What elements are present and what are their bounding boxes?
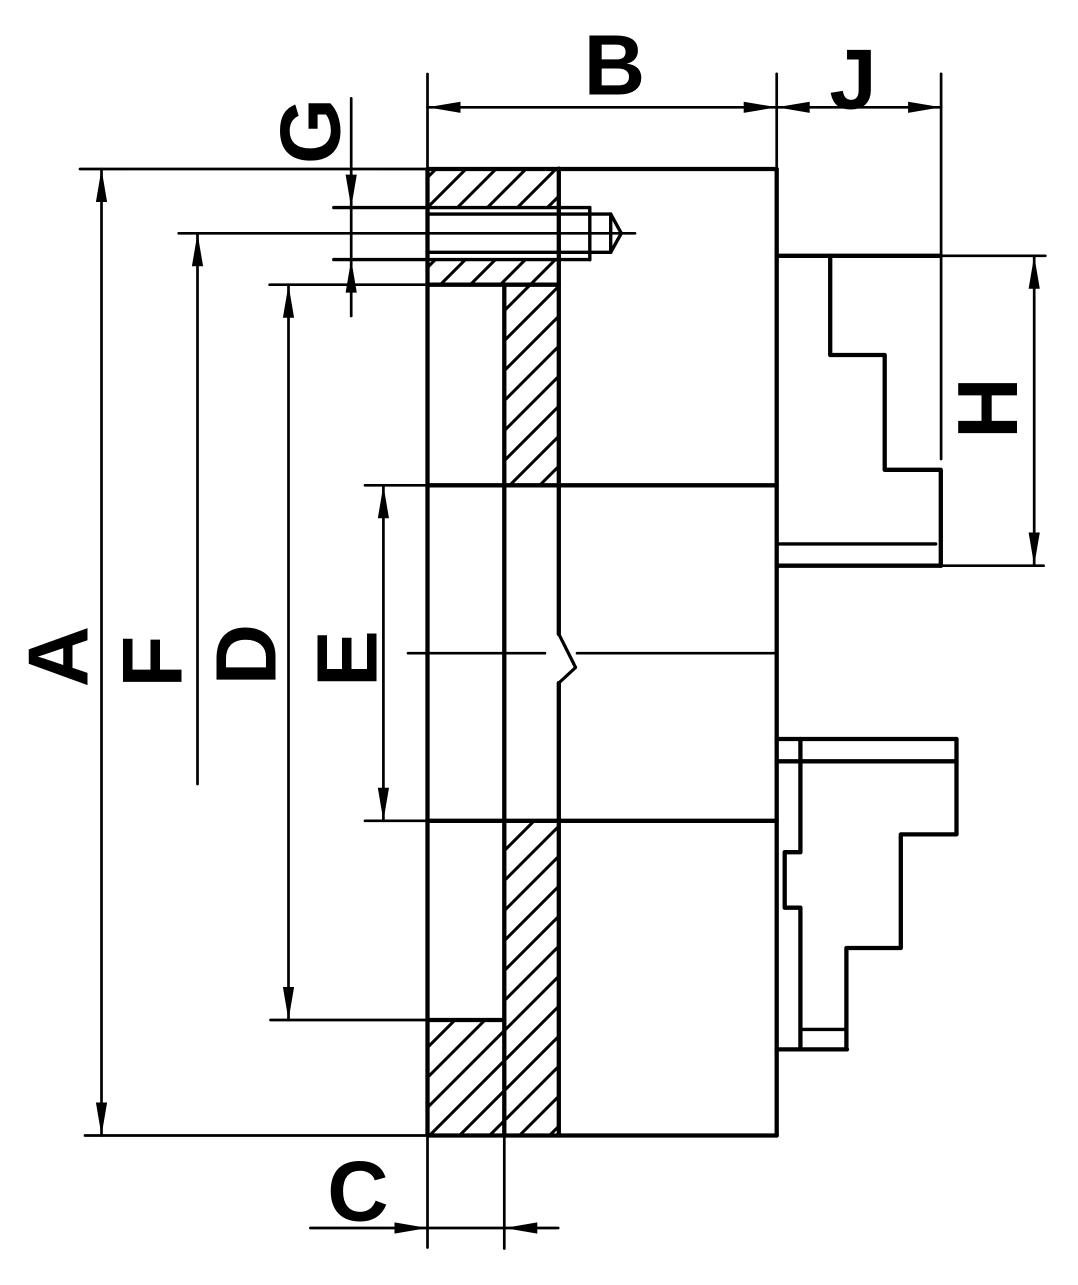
svg-text:E: E (301, 630, 396, 687)
svg-text:A: A (12, 626, 107, 687)
svg-text:F: F (106, 636, 201, 688)
svg-text:C: C (327, 1145, 388, 1240)
svg-text:D: D (200, 624, 295, 685)
svg-text:G: G (264, 98, 359, 164)
svg-text:H: H (941, 377, 1036, 438)
svg-text:J: J (829, 33, 876, 128)
svg-text:B: B (584, 19, 645, 114)
